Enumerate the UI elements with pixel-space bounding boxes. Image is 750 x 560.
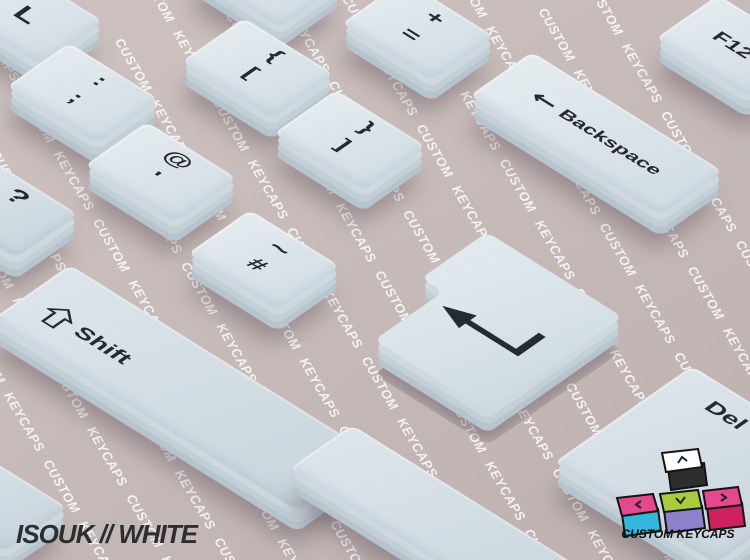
logo-keycap-up <box>662 449 707 490</box>
product-render: CUSTOM KEYCAPS CUSTOM KEYCAPS CUSTOM KEY… <box>0 0 750 560</box>
set-title: ISOUK // WHITE <box>16 519 197 550</box>
logo-keycap-right <box>703 487 745 530</box>
custom-keycaps-logo: CUSTOM KEYCAPS <box>608 448 748 540</box>
shift-up-arrow-icon <box>34 301 82 333</box>
logo-caption: CUSTOM KEYCAPS <box>621 527 734 540</box>
key-label: Shift <box>69 324 136 367</box>
backspace-arrow-icon: ← <box>524 88 563 114</box>
